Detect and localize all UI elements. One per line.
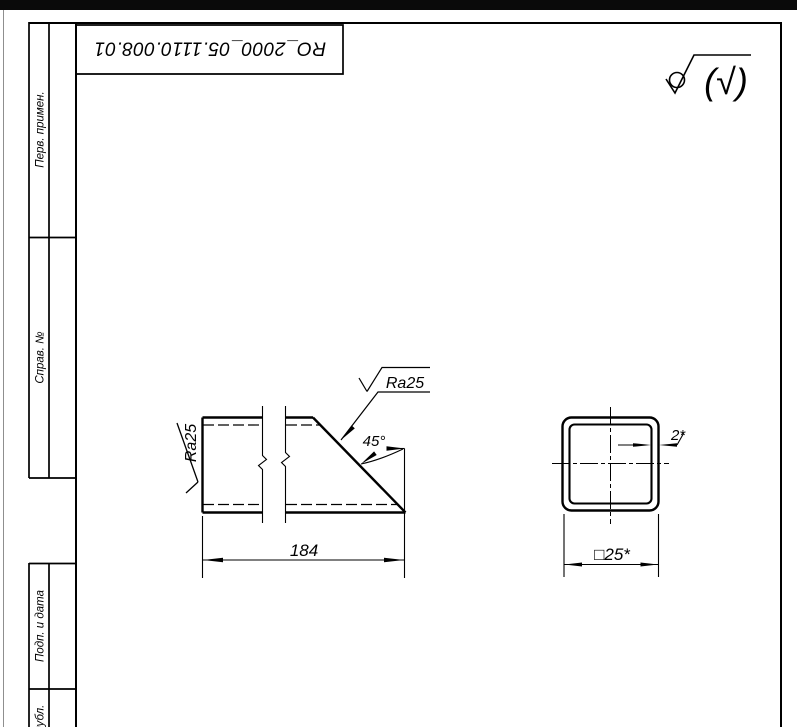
leader-arrowhead: [341, 425, 355, 440]
length-value: 184: [290, 541, 318, 560]
drawing-canvas: Перв. примен. Справ. № Подп. и дата Инв.…: [0, 0, 797, 727]
break-lines: [259, 406, 290, 523]
sidebar-label-sprav-no: Справ. №: [35, 331, 47, 384]
rest-surfaces-mark: (√): [704, 61, 748, 102]
wall-arrowhead-right: [633, 443, 651, 447]
sidebar-label-perv-primen: Перв. примен.: [35, 91, 47, 167]
roughness-chamfer-value: Ra25: [386, 375, 424, 392]
wall-thickness-value: 2*: [670, 427, 686, 444]
designation-text: RO_2000_05.1110.008.01: [94, 38, 326, 59]
roughness-left-value: Ra25: [183, 424, 200, 462]
angle-value: 45°: [363, 433, 386, 450]
sidebar-label-podp-data: Подп. и дата: [35, 590, 47, 662]
size-arrowhead-right: [641, 563, 659, 567]
main-view-outline: [203, 418, 406, 513]
length-arrowhead-left: [203, 558, 223, 562]
sidebar-label-inv-dubl: Инв. № дубл.: [35, 705, 47, 727]
length-arrowhead-right: [384, 558, 404, 562]
drawing-sheet: Перв. примен. Справ. № Подп. и дата Инв.…: [0, 0, 797, 727]
size-value: □25*: [594, 545, 631, 564]
size-arrowhead-left: [565, 563, 583, 567]
